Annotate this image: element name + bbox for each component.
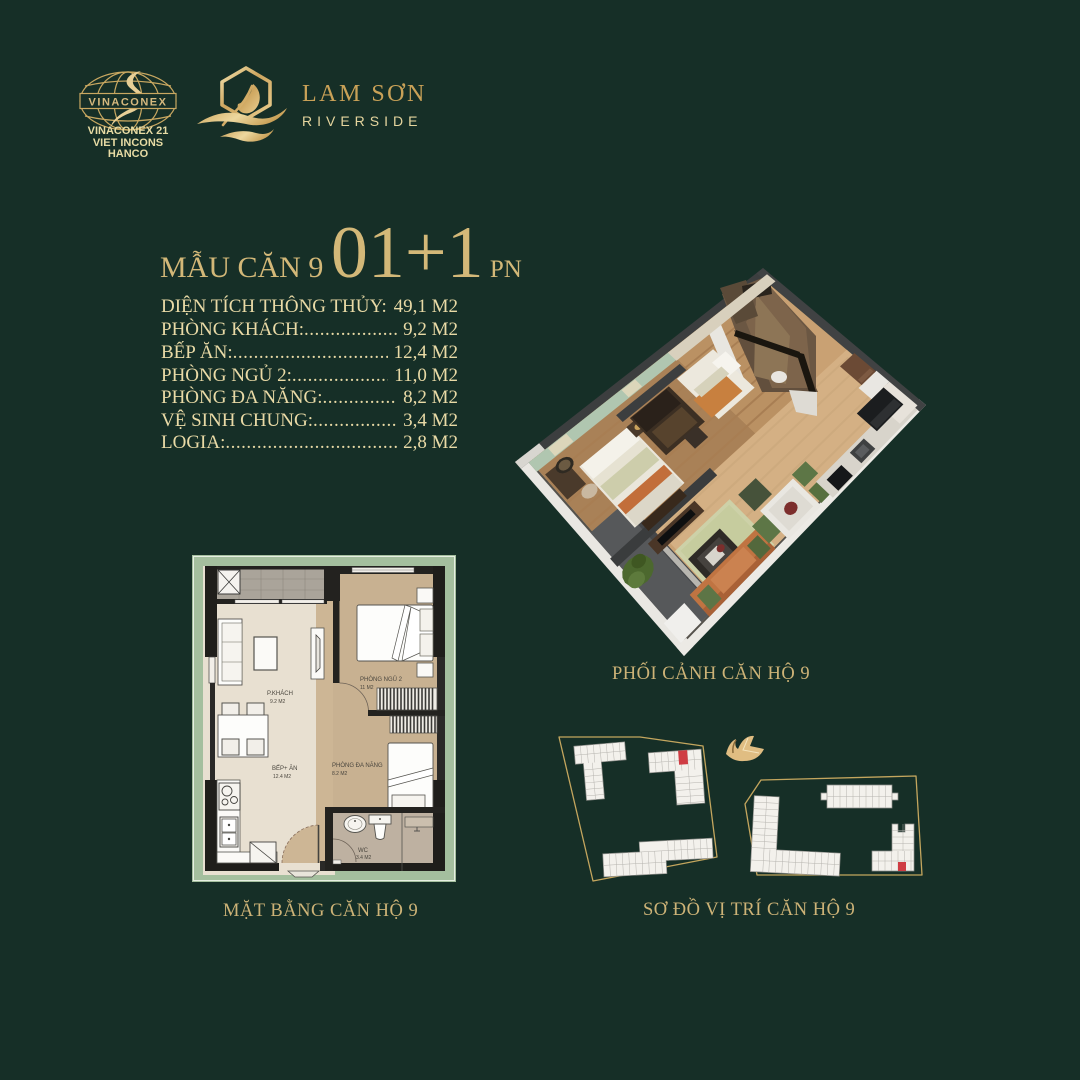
svg-text:9.2 M2: 9.2 M2 [270,699,286,705]
svg-text:8.2 M2: 8.2 M2 [332,771,348,777]
svg-text:WC: WC [358,848,369,854]
svg-text:P.KHÁCH: P.KHÁCH [267,690,293,697]
svg-text:PHÒNG NGỦ 2: PHÒNG NGỦ 2 [360,676,403,683]
svg-text:11 M2: 11 M2 [360,685,374,691]
svg-text:12.4 M2: 12.4 M2 [273,774,291,780]
svg-text:PHÒNG ĐA NĂNG: PHÒNG ĐA NĂNG [332,762,383,769]
svg-text:3.4 M2: 3.4 M2 [356,855,372,861]
svg-text:BẾP+ ĂN: BẾP+ ĂN [272,765,298,772]
